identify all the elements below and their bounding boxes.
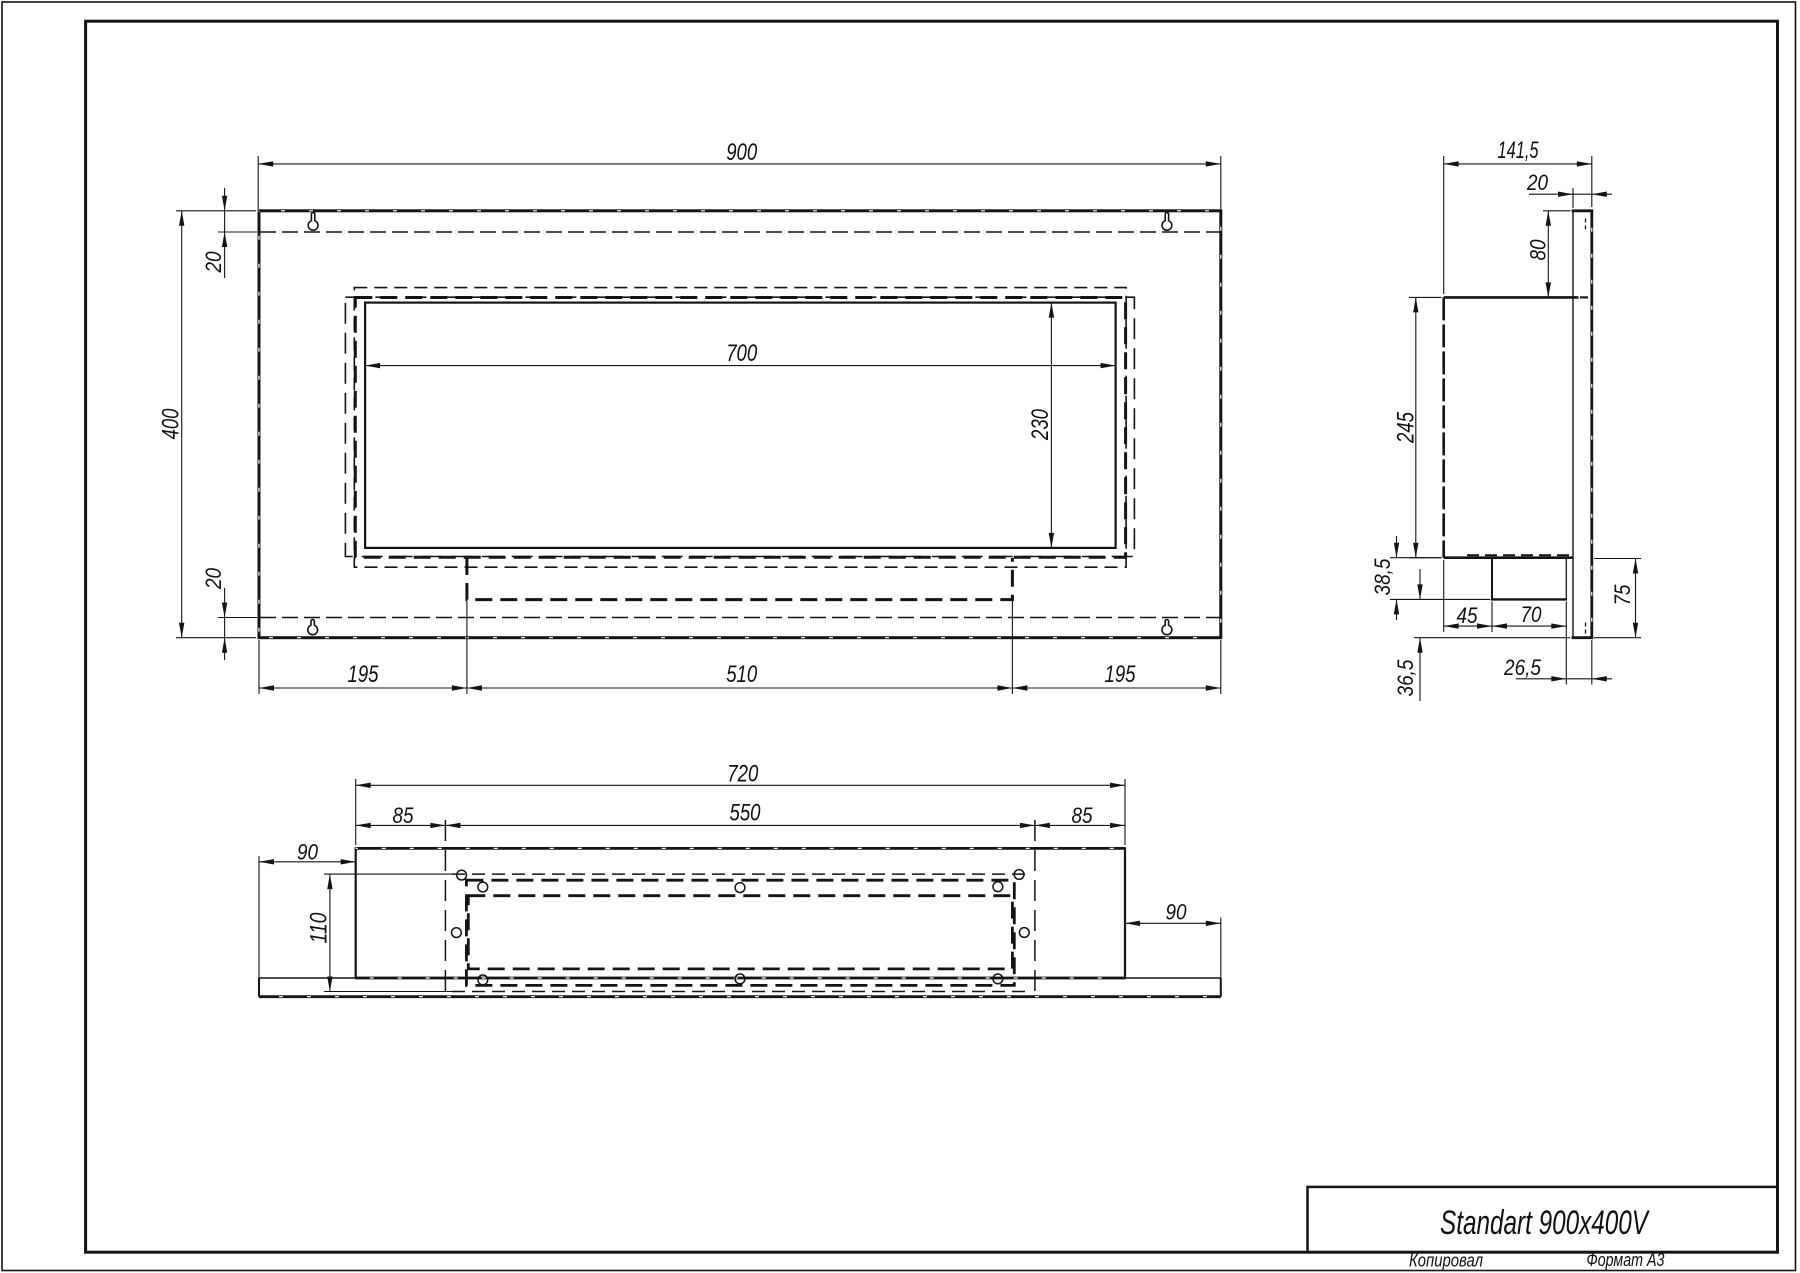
- svg-text:70: 70: [1521, 602, 1543, 627]
- svg-text:75: 75: [1610, 584, 1635, 606]
- svg-text:Standart 900x400V: Standart 900x400V: [1440, 1204, 1650, 1242]
- svg-text:45: 45: [1457, 603, 1479, 628]
- svg-text:20: 20: [201, 567, 226, 590]
- svg-text:245: 245: [1393, 411, 1420, 443]
- svg-text:110: 110: [306, 912, 333, 944]
- svg-text:Копировал: Копировал: [1409, 1251, 1483, 1271]
- svg-text:141,5: 141,5: [1498, 137, 1539, 164]
- svg-text:510: 510: [726, 661, 758, 688]
- svg-text:90: 90: [297, 840, 319, 865]
- svg-text:Формат А3: Формат А3: [1586, 1250, 1664, 1270]
- svg-text:550: 550: [730, 800, 762, 827]
- svg-text:230: 230: [1027, 408, 1054, 440]
- svg-text:85: 85: [1072, 803, 1094, 828]
- svg-text:720: 720: [727, 761, 759, 788]
- svg-text:26,5: 26,5: [1503, 655, 1542, 680]
- svg-text:90: 90: [1166, 900, 1188, 925]
- svg-text:36,5: 36,5: [1393, 659, 1418, 697]
- svg-text:20: 20: [1526, 170, 1549, 195]
- svg-text:400: 400: [158, 408, 185, 440]
- svg-text:900: 900: [726, 139, 758, 166]
- svg-text:195: 195: [1105, 661, 1137, 688]
- svg-text:80: 80: [1526, 239, 1551, 261]
- svg-text:38,5: 38,5: [1370, 558, 1395, 596]
- svg-text:700: 700: [726, 340, 758, 367]
- svg-text:85: 85: [393, 803, 415, 828]
- svg-text:20: 20: [201, 251, 226, 274]
- svg-text:195: 195: [348, 661, 380, 688]
